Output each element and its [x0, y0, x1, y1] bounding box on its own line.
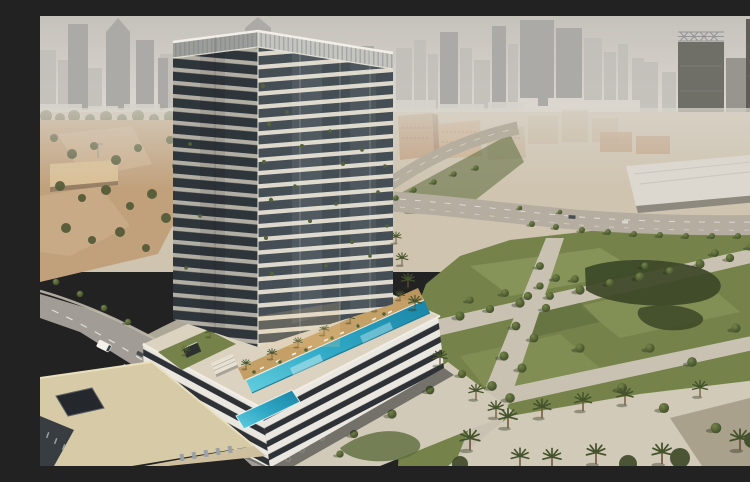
- main-tower: [173, 31, 393, 347]
- scene-canvas: [40, 16, 750, 466]
- aerial-render-image: [40, 16, 750, 466]
